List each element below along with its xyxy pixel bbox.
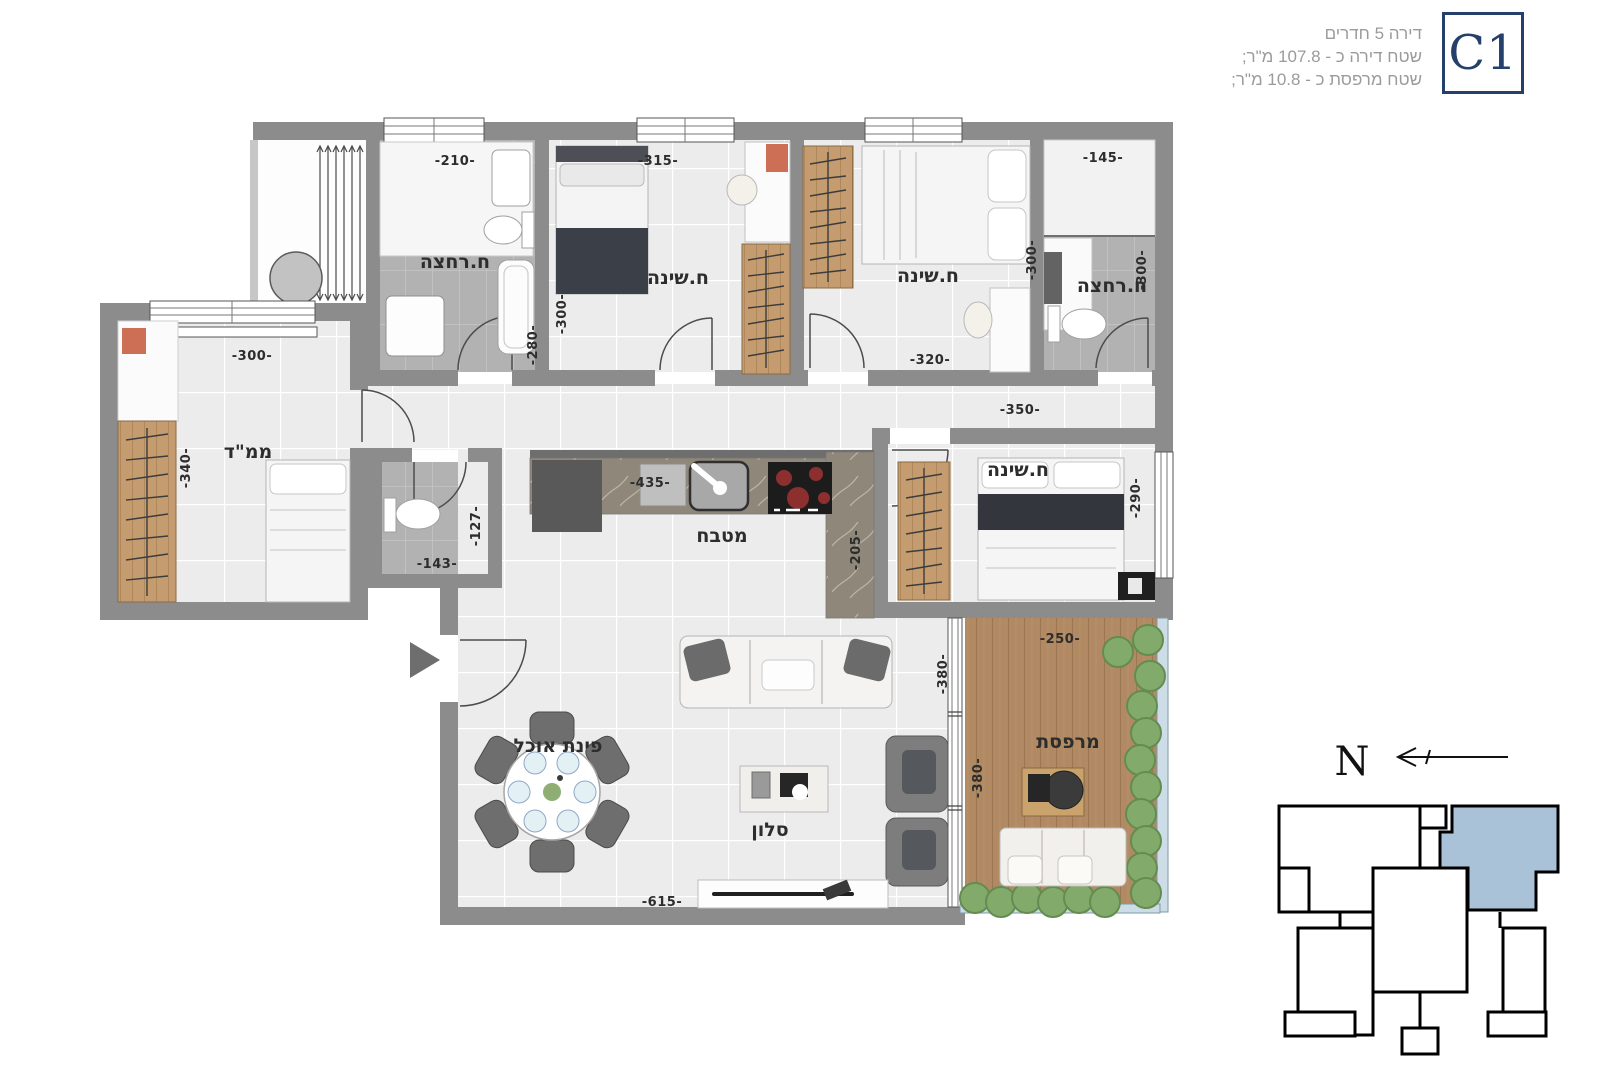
north-arrow bbox=[1398, 748, 1508, 766]
pillow bbox=[988, 208, 1026, 260]
north-label: N bbox=[1335, 739, 1370, 785]
dim-bedroom-1-width: -315- bbox=[638, 154, 678, 169]
key-plan-stub-bottom bbox=[1402, 1028, 1438, 1054]
dim-kitchen-peninsula: -205- bbox=[849, 530, 864, 570]
pillow bbox=[270, 464, 346, 494]
shower-tray bbox=[386, 296, 444, 356]
dim-wc-depth: -127- bbox=[469, 506, 484, 546]
label-living-room: סלון bbox=[751, 819, 788, 841]
dim-bathroom-2-depth: -300- bbox=[1135, 250, 1150, 290]
key-plan-block-center bbox=[1373, 868, 1467, 992]
sink bbox=[492, 150, 530, 206]
floor-plan-page: דירה 5 חדרים שטח דירה כ - 107.8 מ"ר; שטח… bbox=[0, 0, 1600, 1067]
pillow bbox=[988, 150, 1026, 202]
chair bbox=[964, 302, 992, 338]
wall-wc-right bbox=[488, 448, 502, 588]
dim-wc-width: -143- bbox=[417, 557, 457, 572]
wall-wc-left bbox=[368, 448, 382, 588]
dim-master-width: -350- bbox=[1000, 403, 1040, 418]
wall-living-left bbox=[440, 702, 458, 925]
entry-arrow bbox=[410, 642, 440, 678]
toilet-icon bbox=[1062, 309, 1106, 339]
wall-wc-bottom bbox=[368, 574, 502, 588]
label-kitchen: מטבח bbox=[696, 525, 747, 547]
dim-master-depth: -290- bbox=[1129, 478, 1144, 518]
wall-bath1-left bbox=[366, 140, 380, 386]
label-bathroom-1: ח.רחצה bbox=[420, 251, 490, 273]
water-heater bbox=[270, 252, 322, 304]
kitchen-cabinet bbox=[532, 460, 602, 532]
wall-master-left bbox=[872, 428, 888, 618]
toilet-icon bbox=[484, 216, 522, 244]
dim-living-width: -615- bbox=[642, 895, 682, 910]
utility-thin-wall bbox=[250, 140, 258, 308]
dim-mamad-width: -300- bbox=[232, 349, 272, 364]
label-master-bedroom: ח.שינה bbox=[987, 459, 1049, 481]
pillow bbox=[1054, 462, 1120, 488]
desk-chair bbox=[122, 328, 146, 354]
floor-plan: ח.רחצה ח.שינה ח.שינה ח.רחצה ממ"ד מטבח ח.… bbox=[0, 0, 1600, 1067]
toilet-tank bbox=[522, 212, 534, 248]
dim-balcony-depth: -380- bbox=[971, 758, 986, 798]
chair bbox=[727, 175, 757, 205]
toilet-tank bbox=[1048, 306, 1060, 342]
wall-master-top bbox=[950, 428, 1155, 444]
label-bedroom-1: ח.שינה bbox=[647, 267, 709, 289]
desk bbox=[990, 288, 1030, 372]
label-balcony: מרפסת bbox=[1036, 731, 1100, 753]
key-plan bbox=[1279, 806, 1558, 1054]
label-dining: פינת אוכל bbox=[514, 735, 603, 757]
bed-runner bbox=[978, 494, 1124, 530]
dim-balcony-width: -250- bbox=[1040, 632, 1080, 647]
toilet-icon bbox=[396, 499, 440, 529]
dim-kitchen-width: -435- bbox=[630, 476, 670, 491]
corridor-floor bbox=[458, 384, 1155, 428]
dim-living-depth: -380- bbox=[936, 654, 951, 694]
wall-mamad-bottom bbox=[100, 602, 368, 620]
balcony-rail-right bbox=[1157, 618, 1168, 912]
wall-living-bottom bbox=[440, 907, 965, 925]
wall-mamad-right bbox=[350, 448, 368, 602]
centerpiece bbox=[543, 783, 561, 801]
dim-bedroom-2-depth: -300- bbox=[1025, 240, 1040, 280]
dim-bathroom-1-niche: -280- bbox=[526, 325, 541, 365]
wall-mamad-left bbox=[100, 303, 118, 620]
dim-bedroom-1-depth: -300- bbox=[555, 294, 570, 334]
window-master-bedroom bbox=[1155, 452, 1173, 578]
dim-bathroom-2-width: -145- bbox=[1083, 151, 1123, 166]
wall-bed1-bed2 bbox=[790, 140, 804, 386]
compass: N bbox=[1335, 739, 1509, 785]
label-bedroom-2: ח.שינה bbox=[897, 265, 959, 287]
dim-mamad-depth: -340- bbox=[179, 448, 194, 488]
pillow bbox=[560, 164, 644, 186]
counter-back-edge bbox=[530, 450, 874, 458]
dim-bedroom-2-width: -320- bbox=[910, 353, 950, 368]
toilet-tank bbox=[384, 498, 396, 532]
dim-bathroom-1-width: -210- bbox=[435, 154, 475, 169]
label-mamad: ממ"ד bbox=[224, 441, 273, 463]
desk-chair bbox=[766, 144, 788, 172]
wall-balcony-top bbox=[870, 602, 1173, 618]
blanket bbox=[556, 228, 648, 294]
key-plan-notch bbox=[1420, 806, 1446, 828]
